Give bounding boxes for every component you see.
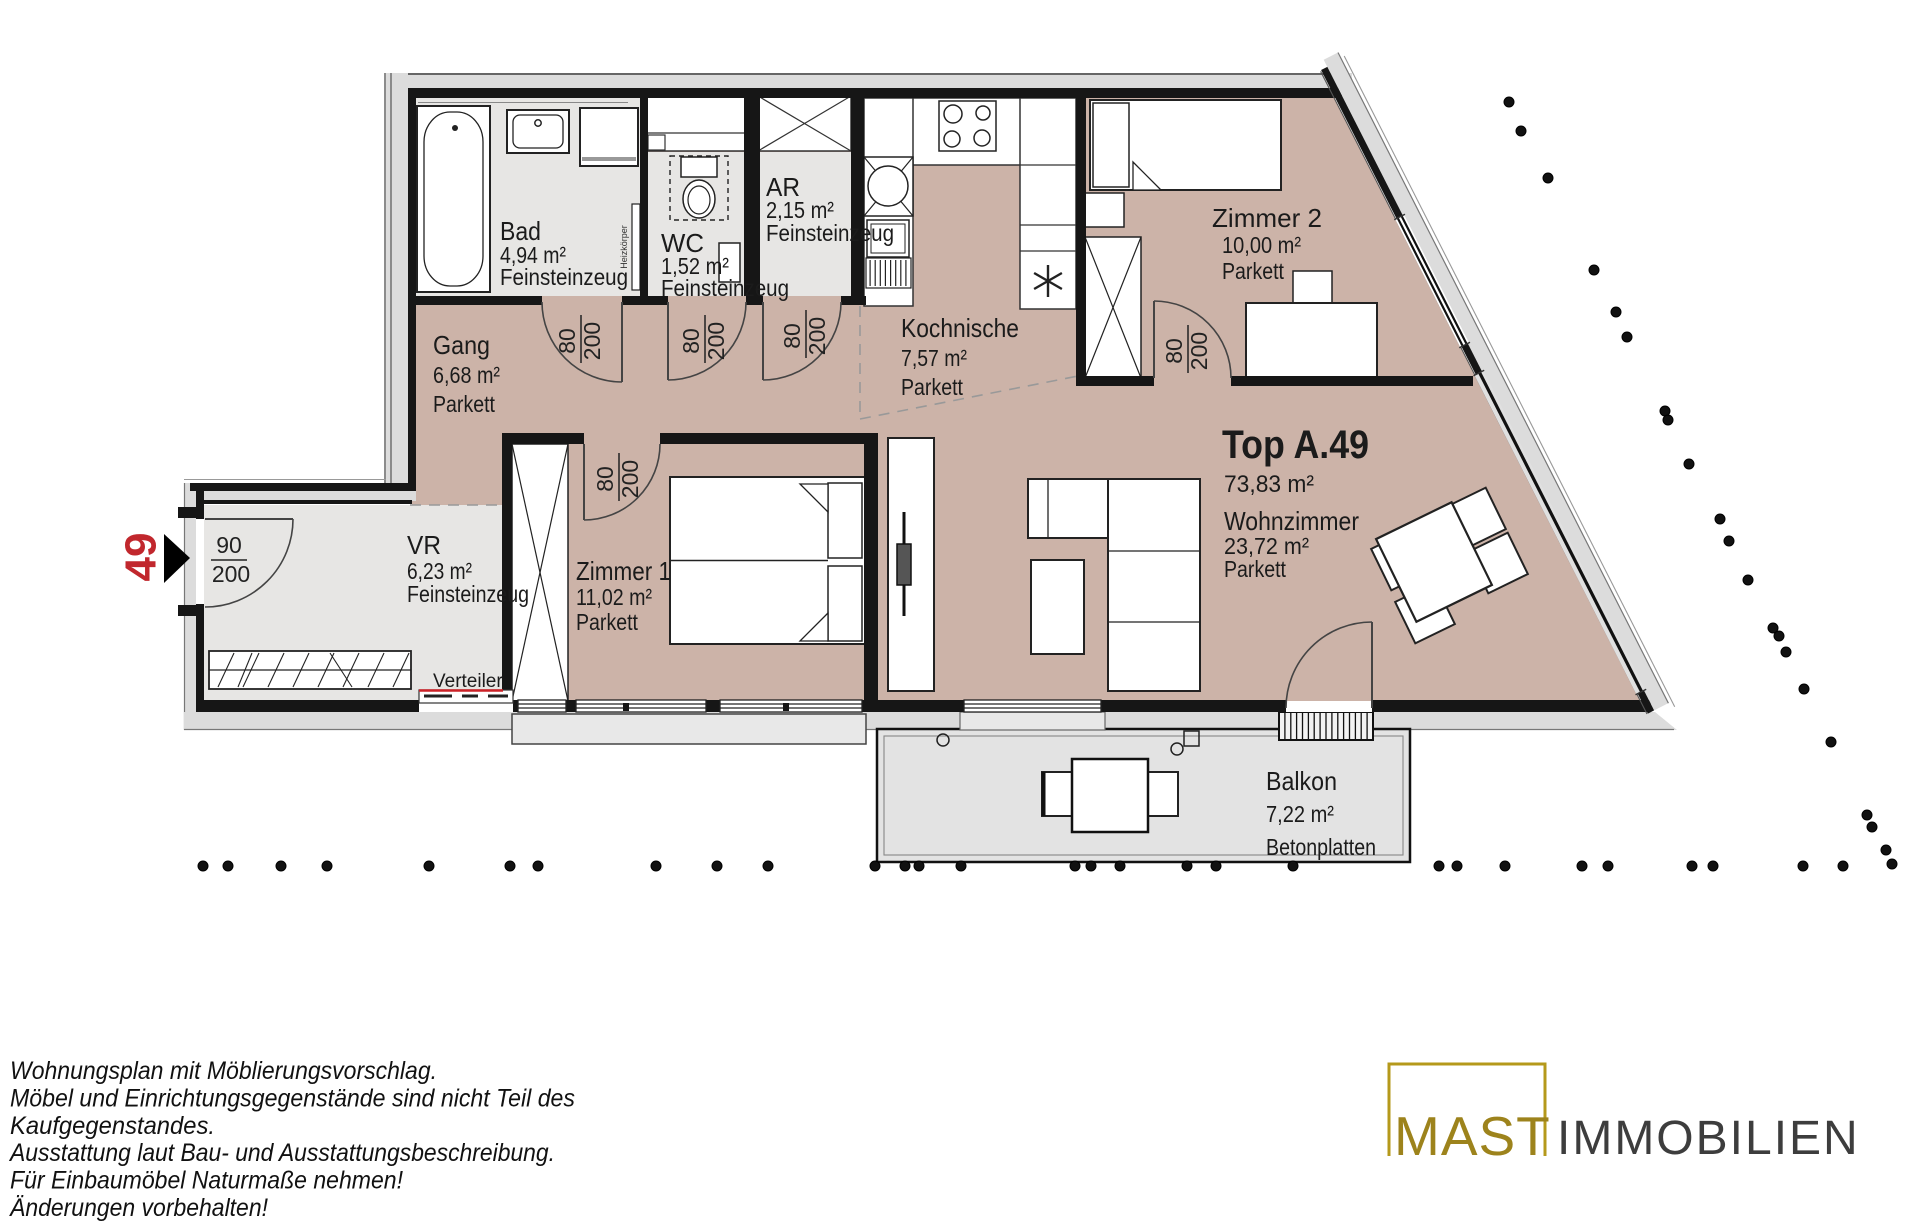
svg-text:Verteiler: Verteiler: [433, 671, 503, 692]
svg-text:73,83 m²: 73,83 m²: [1224, 471, 1314, 498]
svg-text:90: 90: [216, 532, 242, 558]
svg-text:80: 80: [554, 328, 580, 354]
svg-text:6,68 m²: 6,68 m²: [433, 362, 500, 388]
svg-text:Balkon: Balkon: [1266, 766, 1337, 796]
svg-text:VR: VR: [407, 530, 441, 560]
svg-text:Zimmer 1: Zimmer 1: [576, 556, 671, 586]
svg-text:7,57 m²: 7,57 m²: [901, 345, 967, 371]
svg-text:Parkett: Parkett: [433, 391, 496, 417]
svg-text:IMMOBILIEN: IMMOBILIEN: [1557, 1112, 1860, 1165]
svg-text:Kochnische: Kochnische: [901, 313, 1019, 343]
svg-text:200: 200: [212, 561, 250, 587]
svg-text:7,22 m²: 7,22 m²: [1266, 801, 1334, 827]
svg-text:Parkett: Parkett: [1222, 258, 1285, 284]
svg-text:Heizkörper: Heizkörper: [619, 225, 629, 269]
svg-text:Für Einbaumöbel Naturmaße nehm: Für Einbaumöbel Naturmaße nehmen!: [10, 1167, 403, 1195]
svg-text:49: 49: [117, 533, 166, 582]
svg-text:80: 80: [1161, 338, 1187, 364]
svg-text:Parkett: Parkett: [1224, 556, 1287, 582]
svg-text:MAST: MAST: [1394, 1105, 1551, 1167]
svg-text:80: 80: [779, 323, 805, 349]
svg-text:Möbel und Einrichtungsgegenstä: Möbel und Einrichtungsgegenstände sind n…: [10, 1084, 575, 1112]
svg-text:Parkett: Parkett: [576, 609, 639, 635]
svg-text:Änderungen vorbehalten!: Änderungen vorbehalten!: [8, 1194, 268, 1222]
svg-text:Ausstattung laut Bau- und Auss: Ausstattung laut Bau- und Ausstattungsbe…: [8, 1139, 555, 1167]
svg-text:11,02 m²: 11,02 m²: [576, 584, 652, 610]
svg-text:Feinsteinzeug: Feinsteinzeug: [766, 220, 894, 246]
svg-text:200: 200: [1186, 332, 1212, 370]
svg-text:Feinsteinzeug: Feinsteinzeug: [500, 264, 628, 290]
svg-text:80: 80: [592, 466, 618, 492]
svg-text:10,00 m²: 10,00 m²: [1222, 232, 1301, 258]
svg-text:Gang: Gang: [433, 330, 490, 360]
svg-text:200: 200: [579, 322, 605, 360]
svg-text:80: 80: [678, 328, 704, 354]
svg-text:200: 200: [703, 322, 729, 360]
svg-text:Wohnungsplan mit Möblierungsvo: Wohnungsplan mit Möblierungsvorschlag.: [10, 1057, 437, 1085]
svg-text:200: 200: [617, 460, 643, 498]
svg-text:200: 200: [804, 317, 830, 355]
svg-text:Kaufgegenstandes.: Kaufgegenstandes.: [10, 1112, 215, 1140]
svg-text:Top A.49: Top A.49: [1222, 423, 1369, 467]
svg-text:Feinsteinzeug: Feinsteinzeug: [661, 275, 789, 301]
svg-text:Wohnzimmer: Wohnzimmer: [1224, 506, 1359, 536]
svg-text:Parkett: Parkett: [901, 374, 964, 400]
svg-text:Betonplatten: Betonplatten: [1266, 834, 1376, 860]
svg-text:Zimmer 2: Zimmer 2: [1212, 203, 1322, 233]
svg-text:Feinsteinzeug: Feinsteinzeug: [407, 581, 529, 607]
